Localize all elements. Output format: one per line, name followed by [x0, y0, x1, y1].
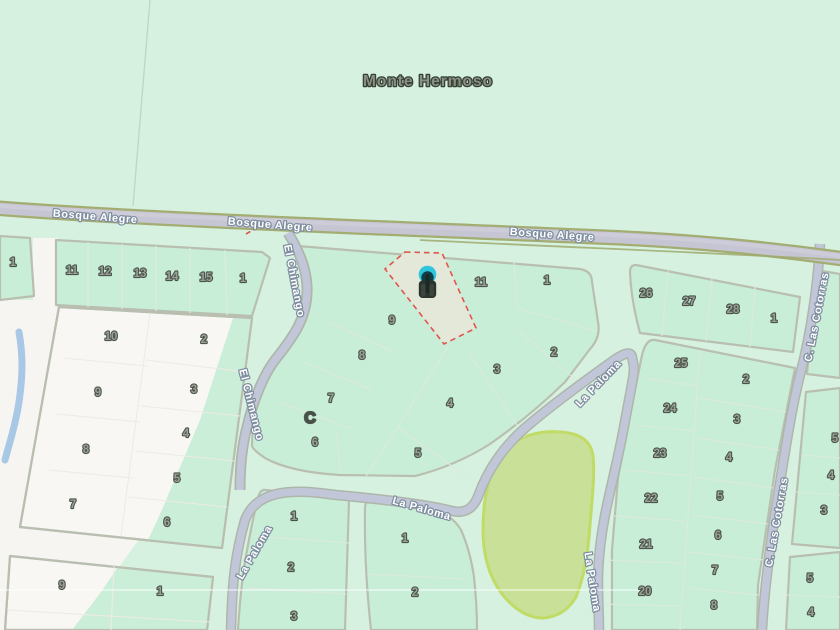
svg-text:8: 8 — [359, 350, 366, 362]
svg-text:21: 21 — [640, 539, 653, 551]
svg-text:5: 5 — [415, 448, 422, 460]
svg-text:23: 23 — [654, 448, 667, 460]
svg-text:28: 28 — [727, 304, 740, 316]
svg-text:7: 7 — [712, 565, 718, 577]
svg-text:1: 1 — [10, 257, 17, 269]
svg-text:3: 3 — [494, 364, 500, 376]
svg-text:1: 1 — [544, 275, 551, 287]
svg-text:5: 5 — [832, 433, 839, 445]
svg-text:11: 11 — [66, 265, 79, 277]
svg-text:26: 26 — [640, 288, 653, 300]
svg-text:8: 8 — [711, 600, 718, 612]
svg-text:7: 7 — [70, 499, 76, 511]
svg-text:2: 2 — [743, 374, 749, 386]
svg-text:Monte Hermoso: Monte Hermoso — [363, 73, 493, 90]
svg-text:24: 24 — [664, 403, 677, 415]
svg-text:13: 13 — [134, 268, 147, 280]
svg-text:8: 8 — [83, 444, 90, 456]
svg-text:1: 1 — [291, 511, 298, 523]
svg-text:10: 10 — [105, 331, 118, 343]
svg-text:7: 7 — [328, 393, 334, 405]
svg-text:12: 12 — [99, 266, 112, 278]
svg-text:2: 2 — [201, 334, 207, 346]
svg-text:1: 1 — [402, 533, 409, 545]
svg-text:3: 3 — [191, 384, 197, 396]
svg-text:25: 25 — [675, 358, 688, 370]
svg-text:4: 4 — [828, 470, 835, 482]
svg-text:3: 3 — [734, 414, 740, 426]
svg-text:20: 20 — [639, 586, 652, 598]
svg-text:5: 5 — [174, 473, 181, 485]
svg-text:4: 4 — [726, 452, 733, 464]
svg-text:9: 9 — [59, 580, 65, 592]
svg-text:2: 2 — [551, 347, 557, 359]
svg-text:9: 9 — [389, 315, 395, 327]
svg-text:2: 2 — [412, 587, 418, 599]
svg-text:5: 5 — [807, 573, 814, 585]
svg-text:6: 6 — [312, 437, 318, 449]
svg-text:3: 3 — [821, 505, 827, 517]
svg-text:C: C — [304, 410, 316, 427]
svg-text:1: 1 — [157, 586, 164, 598]
svg-text:1: 1 — [240, 273, 247, 285]
svg-text:3: 3 — [291, 611, 297, 623]
svg-text:1: 1 — [771, 313, 778, 325]
svg-text:4: 4 — [447, 398, 454, 410]
svg-text:6: 6 — [164, 517, 170, 529]
svg-text:6: 6 — [715, 530, 721, 542]
svg-text:27: 27 — [683, 296, 696, 308]
svg-text:4: 4 — [808, 607, 815, 619]
svg-text:15: 15 — [200, 272, 213, 284]
svg-text:5: 5 — [717, 491, 724, 503]
svg-text:14: 14 — [166, 271, 179, 283]
svg-text:22: 22 — [645, 493, 658, 505]
svg-text:11: 11 — [475, 277, 488, 289]
svg-text:9: 9 — [95, 387, 101, 399]
svg-text:2: 2 — [288, 562, 294, 574]
svg-text:4: 4 — [183, 428, 190, 440]
